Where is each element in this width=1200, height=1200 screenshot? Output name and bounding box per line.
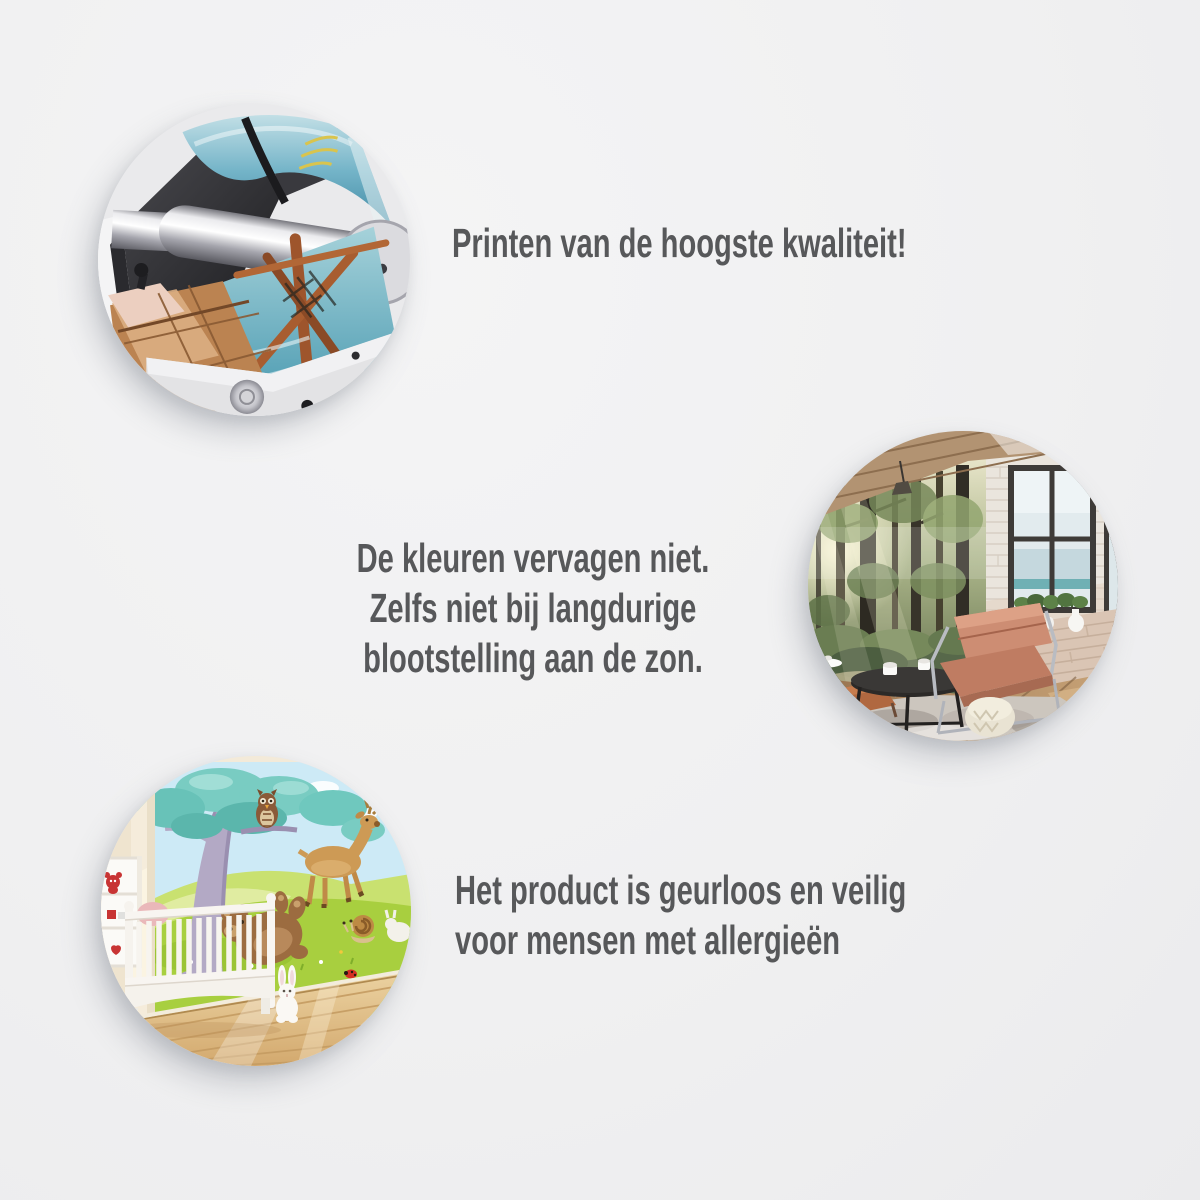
caption-line: blootstelling aan de zon. [285,633,782,683]
living-room-forest-mural-photo [808,431,1118,741]
caption-line: De kleuren vervagen niet. [285,533,782,583]
caption-line: voor mensen met allergieën [455,915,906,965]
feature-text-colorfast: De kleuren vervagen niet. Zelfs niet bij… [285,533,782,683]
knitted-pouf [965,697,1015,737]
wallpaper-product-benefits-section: Printen van de hoogste kwaliteit! [0,0,1200,1200]
red-block [107,910,116,919]
nursery-cartoon-mural-photo [101,756,411,1066]
printing-machine-photo [98,104,410,416]
caption-line: Printen van de hoogste kwaliteit! [452,217,907,269]
feature-image-print-quality [98,104,410,416]
caption-line: Het product is geurloos en veilig [455,865,906,915]
feature-text-odorless-safe: Het product is geurloos en veilig voor m… [455,865,906,965]
feature-text-print-quality: Printen van de hoogste kwaliteit! [452,217,907,269]
feature-image-odorless-safe [101,756,411,1066]
feature-image-colorfast [808,431,1118,741]
caption-line: Zelfs niet bij langdurige [285,583,782,633]
